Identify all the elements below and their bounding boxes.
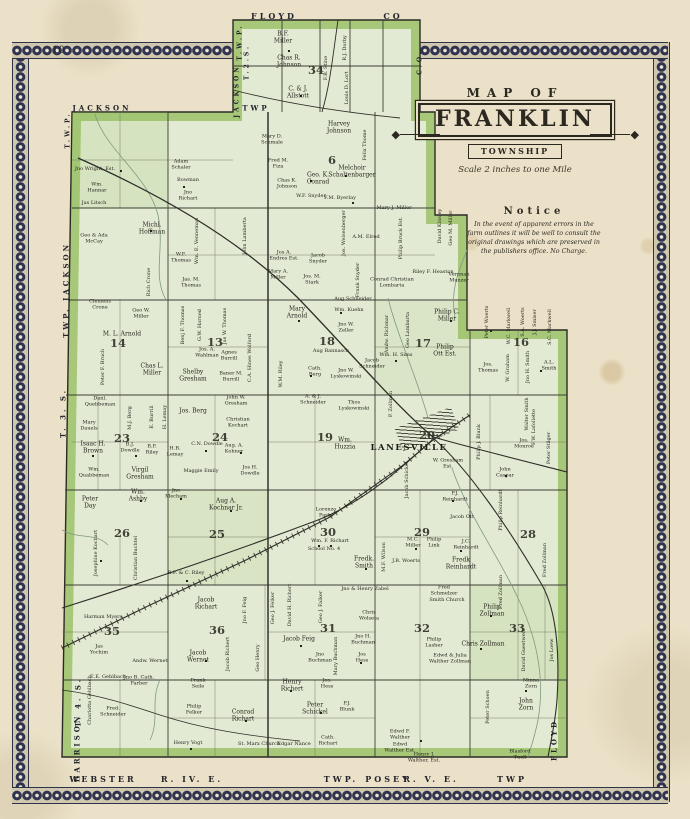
farmstead-dot: [420, 740, 422, 742]
farmstead-dot: [415, 548, 417, 550]
title-flourish-right: [590, 134, 630, 135]
farmstead-dot: [240, 452, 242, 454]
farmstead-dot: [352, 202, 354, 204]
farmstead-dot: [120, 170, 122, 172]
atlas-page: 10: [0, 0, 690, 819]
farmstead-dot: [180, 498, 182, 500]
farmstead-dot: [480, 648, 482, 650]
farmstead-dot: [140, 500, 142, 502]
farmstead-dot: [505, 475, 507, 477]
farmstead-dot: [395, 360, 397, 362]
farmstead-dot: [190, 748, 192, 750]
farmstead-dot: [540, 370, 542, 372]
farmstead-dot: [183, 186, 185, 188]
farmstead-dot: [300, 95, 302, 97]
title-map-of: MAP OF: [398, 86, 632, 100]
farmstead-dot: [288, 50, 290, 52]
notice-block: Notice In the event of apparent errors i…: [467, 206, 601, 257]
farmstead-dot: [186, 580, 188, 582]
farmstead-dot: [452, 500, 454, 502]
farmstead-dot: [205, 660, 207, 662]
farmstead-dot: [320, 712, 322, 714]
farmstead-dot: [330, 545, 332, 547]
farmstead-dot: [490, 330, 492, 332]
farmstead-dot: [92, 455, 94, 457]
map-title-block: MAP OF FRANKLIN TOWNSHIP Scale 2 inches …: [398, 86, 632, 175]
farmstead-dot: [298, 320, 300, 322]
farmstead-dot: [460, 550, 462, 552]
notice-body: In the event of apparent errors in the f…: [467, 220, 601, 257]
farmstead-dot: [525, 690, 527, 692]
farmstead-dot: [310, 375, 312, 377]
farmstead-dot: [205, 450, 207, 452]
farmstead-dot: [345, 175, 347, 177]
title-subtitle: TOWNSHIP: [468, 144, 562, 160]
farmstead-dot: [490, 615, 492, 617]
notice-heading: Notice: [467, 206, 601, 217]
farmstead-dot: [100, 560, 102, 562]
farmstead-dot: [300, 645, 302, 647]
page-number: 10: [52, 45, 65, 56]
title-township-name: FRANKLIN: [418, 103, 612, 137]
title-flourish-left: [400, 134, 440, 135]
farmstead-dot: [360, 662, 362, 664]
farmstead-dot: [310, 180, 312, 182]
farmstead-dot: [150, 230, 152, 232]
farmstead-dot: [245, 720, 247, 722]
farmstead-dot: [450, 320, 452, 322]
farmstead-dot: [340, 312, 342, 314]
map-scale-note: Scale 2 inches to one Mile: [398, 165, 632, 175]
farmstead-dot: [290, 690, 292, 692]
farmstead-dot: [135, 455, 137, 457]
farmstead-dot: [230, 510, 232, 512]
farmstead-dot: [365, 568, 367, 570]
farmstead-dot: [318, 545, 320, 547]
